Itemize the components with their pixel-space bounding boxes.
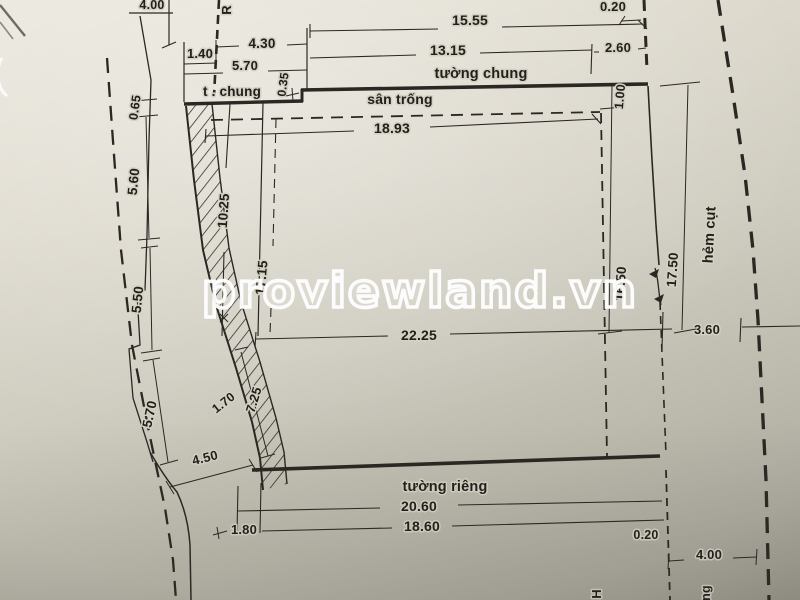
r-street-line: R	[214, 0, 234, 96]
dim-15-55: 15.55	[452, 12, 488, 28]
bottom-dimensions: 20.60 1.80 18.60 0.20 4.00	[213, 483, 757, 569]
dim-13-15: 13.15	[430, 42, 466, 58]
right-street-dashed-line	[718, 0, 769, 600]
label-hem-cut: hẻm cụt	[701, 206, 720, 264]
dim-4-30: 4.30	[248, 36, 275, 51]
dim-1-00: 1.00	[612, 84, 628, 110]
dim-2-60: 2.60	[605, 40, 631, 55]
label-tuong-chung: tường chung	[434, 66, 527, 82]
label-san-trong: sân trống	[367, 91, 433, 107]
label-tuong-rieng: tường riêng	[402, 479, 487, 495]
partial-street-label-ng: ng	[699, 585, 713, 600]
scanned-site-plan: 4.00 R 15.55 0.20 13.15 2.60 4.30 1.40	[0, 0, 800, 600]
dim-top-left-4-00: 4.00	[139, 0, 164, 12]
dim-18-60: 18.60	[404, 518, 440, 534]
top-right-dashed-wall	[644, 0, 647, 70]
dim-5-50: 5.50	[129, 285, 147, 313]
dim-0-35: 0.35	[274, 71, 291, 97]
dim-10-25: 10.25	[215, 193, 232, 229]
top-left-dim: 4.00	[129, 0, 176, 48]
right-boundary-line	[648, 86, 670, 600]
dim-5-70-top: 5.70	[232, 58, 258, 73]
site-plan-svg: 4.00 R 15.55 0.20 13.15 2.60 4.30 1.40	[0, 0, 800, 600]
label-t-chung: t . chung	[203, 84, 261, 99]
dim-1-80: 1.80	[231, 522, 257, 537]
corner-scribble	[0, 5, 25, 96]
dim-20-60: 20.60	[401, 498, 437, 514]
dim-0-20-top: 0.20	[600, 0, 626, 14]
partial-street-label-h: H	[589, 589, 604, 599]
left-street-dashed-line	[107, 58, 176, 600]
dim-4-50: 4.50	[190, 447, 219, 468]
dim-1-70: 1.70	[209, 390, 237, 417]
dim-22-25: 22.25	[401, 327, 437, 343]
dim-5-60: 5.60	[125, 167, 143, 195]
dim-18-93: 18.93	[374, 120, 410, 136]
dim-4-00-right: 4.00	[696, 547, 722, 562]
watermark-text: proviewland.vn	[202, 264, 638, 319]
partial-street-label-r: R	[219, 5, 234, 15]
dim-0-20-bottom: 0.20	[633, 528, 658, 542]
dim-3-60: 3.60	[694, 322, 720, 337]
bottom-wall	[252, 456, 660, 470]
dim-0-35-group: 0.35	[274, 71, 299, 101]
dim-18-93-group: 18.93	[205, 114, 601, 143]
dim-1-40: 1.40	[187, 46, 213, 61]
dim-17-50: 17.50	[664, 252, 681, 288]
partial-watermark-mark	[0, 58, 7, 96]
